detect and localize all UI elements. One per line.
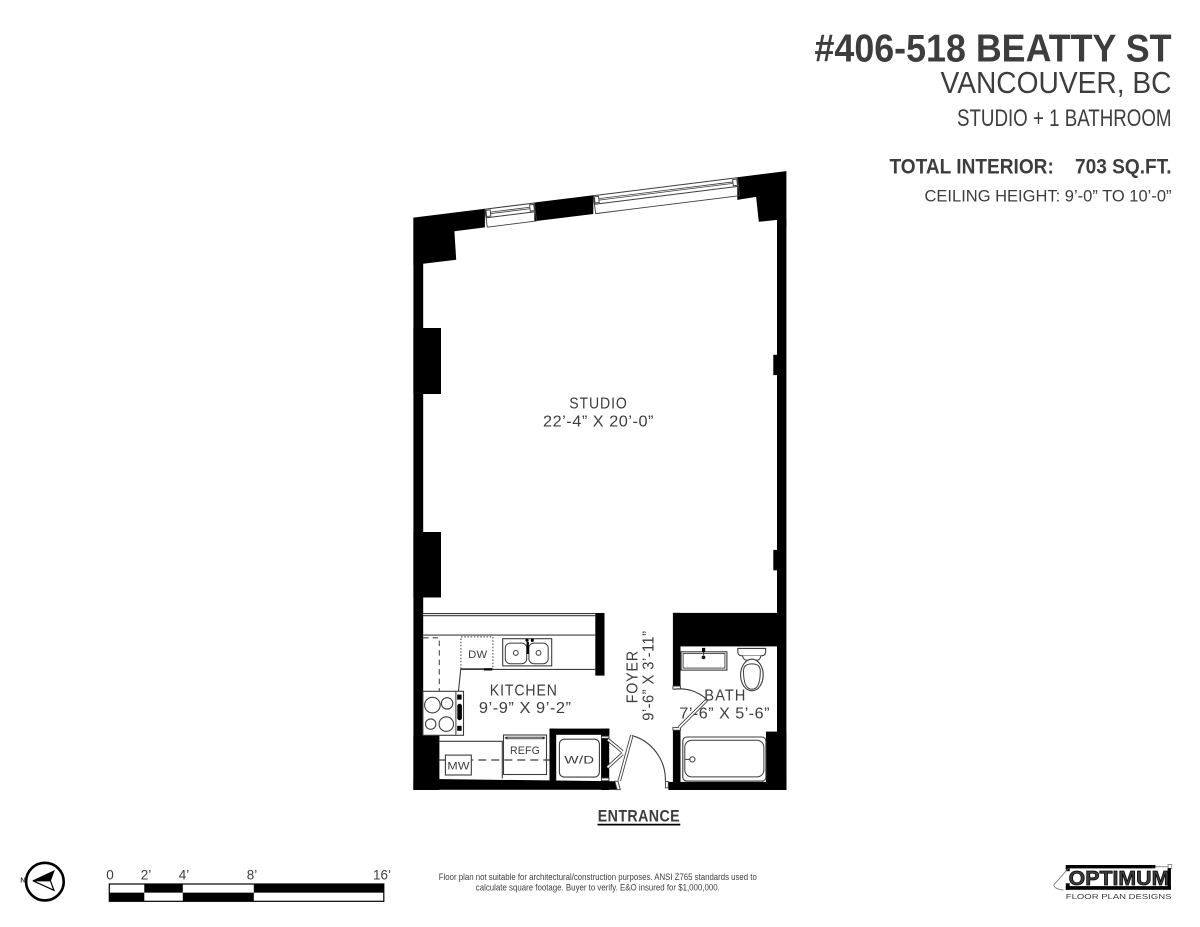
svg-text:4’: 4’ <box>179 868 190 883</box>
svg-text:CEILING HEIGHT: 9’-0” TO 10’-0: CEILING HEIGHT: 9’-0” TO 10’-0” <box>925 186 1172 205</box>
svg-text:MW: MW <box>447 760 470 772</box>
svg-text:2’: 2’ <box>141 868 152 883</box>
svg-text:8’: 8’ <box>247 868 258 883</box>
svg-text:DW: DW <box>468 649 487 661</box>
svg-text:9’-6” X 3’-11”: 9’-6” X 3’-11” <box>641 631 658 721</box>
svg-text:BATH: BATH <box>704 687 746 704</box>
svg-text:7’-6” X 5’-6”: 7’-6” X 5’-6” <box>679 706 770 723</box>
svg-text:22’-4” X 20’-0”: 22’-4” X 20’-0” <box>543 414 654 431</box>
svg-text:calculate square footage. Buye: calculate square footage. Buyer to verif… <box>476 882 720 892</box>
svg-text:STUDIO + 1 BATHROOM: STUDIO + 1 BATHROOM <box>957 105 1172 132</box>
svg-text:STUDIO: STUDIO <box>569 396 628 413</box>
svg-text:N: N <box>20 876 25 885</box>
svg-text:TOTAL INTERIOR: 703 SQ.FT.: TOTAL INTERIOR: 703 SQ.FT. <box>890 154 1172 178</box>
svg-text:16’: 16’ <box>373 868 391 883</box>
svg-text:VANCOUVER, BC: VANCOUVER, BC <box>941 65 1172 100</box>
svg-text:Floor plan not suitable for ar: Floor plan not suitable for architectura… <box>439 872 757 882</box>
svg-text:FOYER: FOYER <box>624 650 641 703</box>
svg-text:KITCHEN: KITCHEN <box>490 682 558 699</box>
svg-text:W/D: W/D <box>564 755 594 767</box>
svg-text:ENTRANCE: ENTRANCE <box>598 807 680 826</box>
svg-text:FLOOR PLAN DESIGNS: FLOOR PLAN DESIGNS <box>1066 892 1172 901</box>
svg-text:0: 0 <box>106 868 114 883</box>
svg-text:REFG: REFG <box>510 745 540 757</box>
svg-text:9’-9” X 9’-2”: 9’-9” X 9’-2” <box>479 700 572 717</box>
